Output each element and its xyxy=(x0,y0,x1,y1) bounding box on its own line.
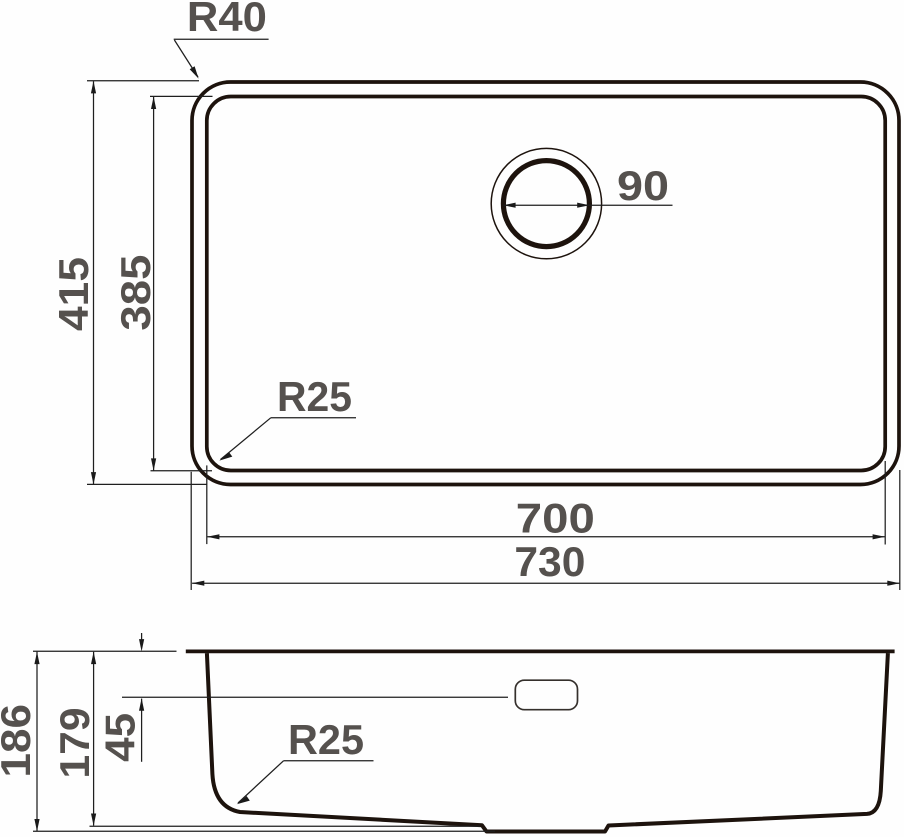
svg-text:R25: R25 xyxy=(277,373,352,420)
svg-text:179: 179 xyxy=(51,708,98,779)
svg-text:730: 730 xyxy=(514,538,585,585)
svg-text:700: 700 xyxy=(516,495,595,542)
svg-text:R40: R40 xyxy=(187,0,267,40)
svg-text:186: 186 xyxy=(0,704,39,778)
svg-text:415: 415 xyxy=(50,257,97,331)
svg-text:R25: R25 xyxy=(288,716,364,763)
svg-text:385: 385 xyxy=(112,255,159,331)
svg-text:90: 90 xyxy=(617,162,669,209)
svg-text:45: 45 xyxy=(97,713,144,762)
